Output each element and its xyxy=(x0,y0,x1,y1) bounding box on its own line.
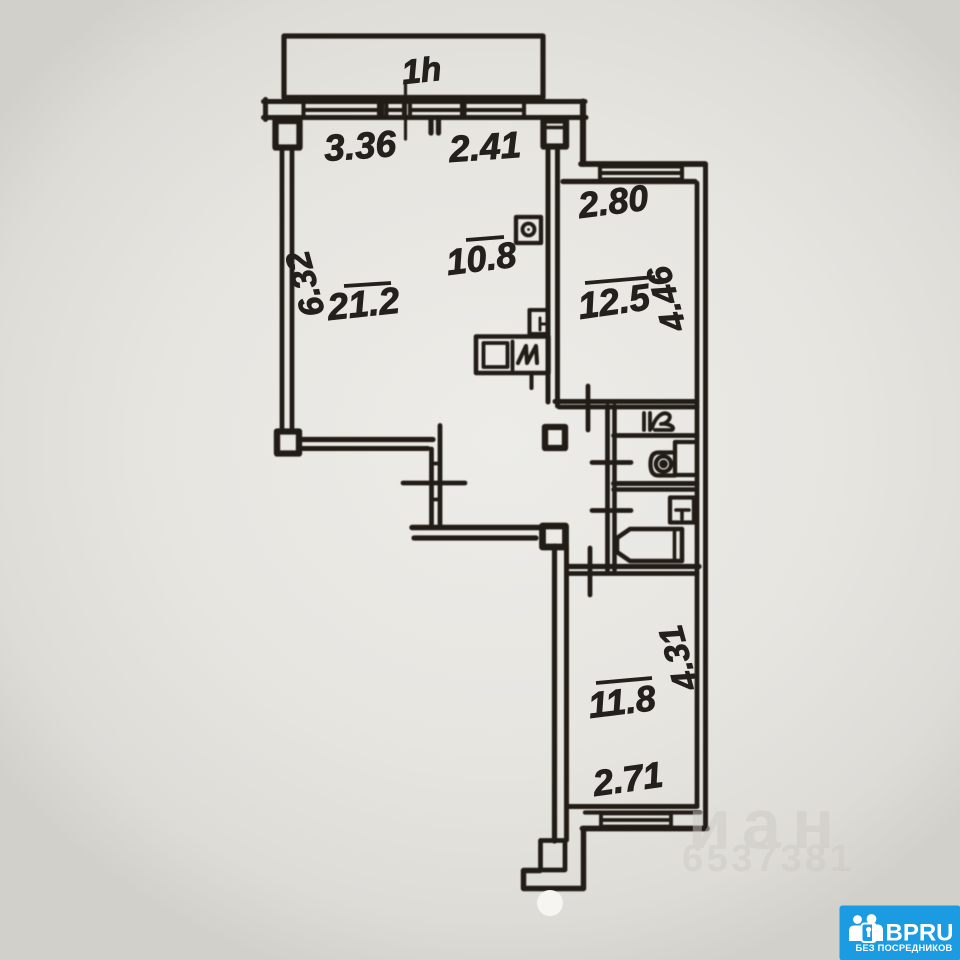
svg-text:21.2: 21.2 xyxy=(325,280,402,328)
svg-text:3.36: 3.36 xyxy=(323,123,398,169)
svg-text:БЕЗ ПОСРЕДНИКОВ: БЕЗ ПОСРЕДНИКОВ xyxy=(856,943,953,953)
svg-text:2.41: 2.41 xyxy=(447,124,523,170)
svg-text:6.32: 6.32 xyxy=(279,247,333,321)
svg-text:2.80: 2.80 xyxy=(575,177,651,226)
svg-text:4.46: 4.46 xyxy=(640,261,694,337)
svg-text:6537381: 6537381 xyxy=(682,838,854,880)
svg-text:10.8: 10.8 xyxy=(444,234,519,283)
svg-text:2.71: 2.71 xyxy=(589,754,665,804)
svg-text:1h: 1h xyxy=(400,50,443,92)
